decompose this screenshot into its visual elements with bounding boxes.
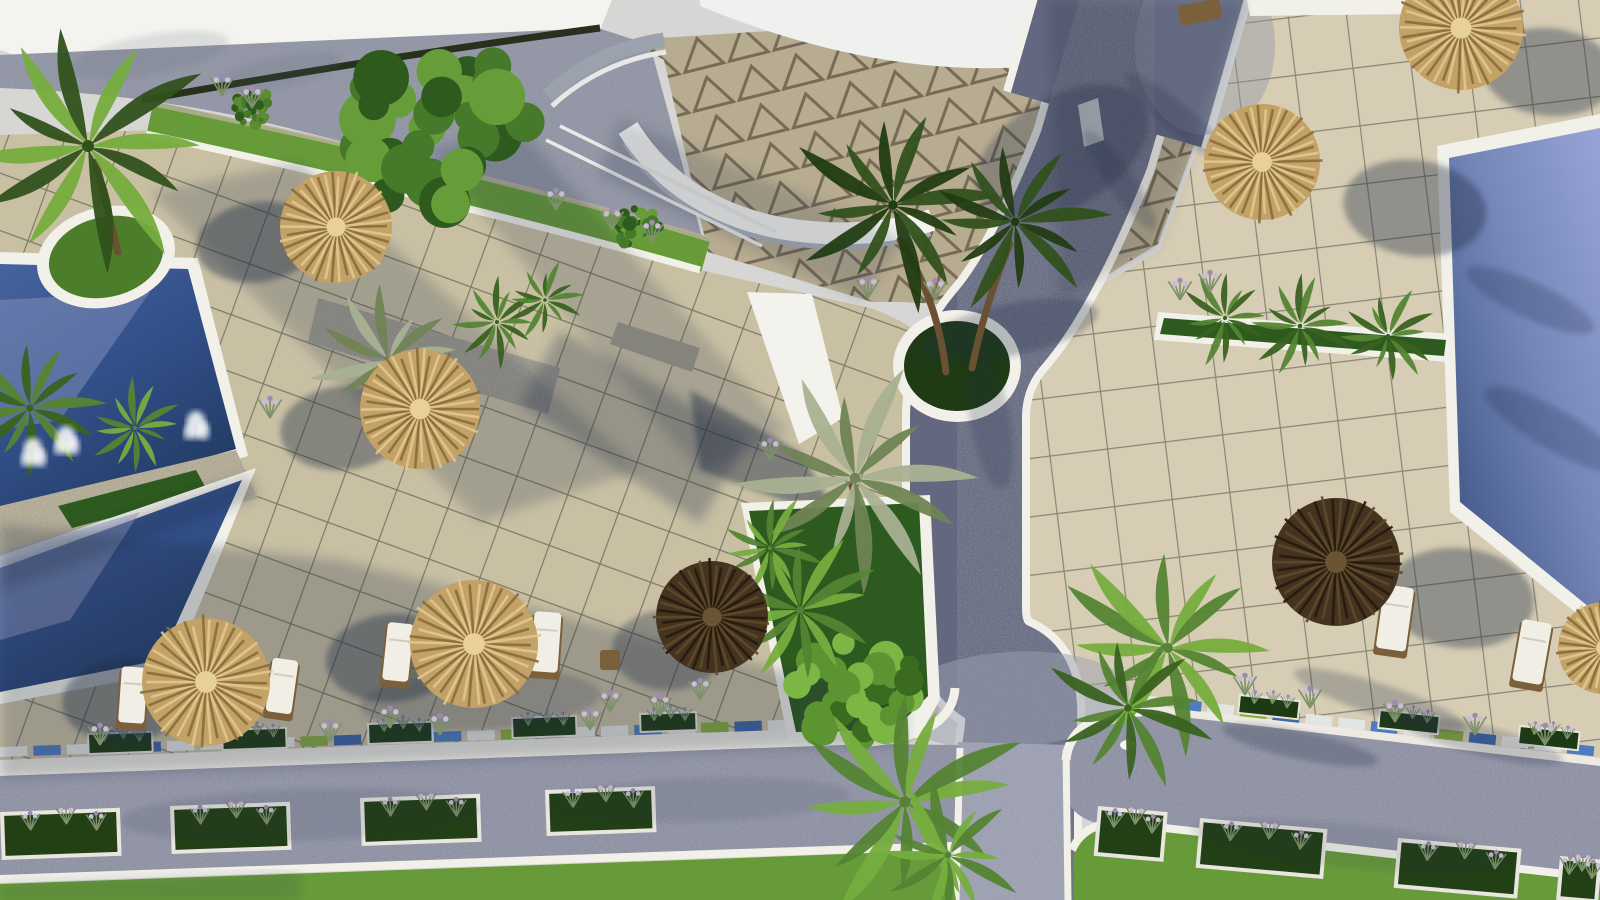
scene-canvas (0, 0, 1600, 900)
aerial-resort-rendering: Aerial 3D architectural rendering of a r… (0, 0, 1600, 900)
road-planter (0, 803, 122, 860)
stool (600, 650, 620, 670)
extension-curb-right (1066, 750, 1068, 900)
